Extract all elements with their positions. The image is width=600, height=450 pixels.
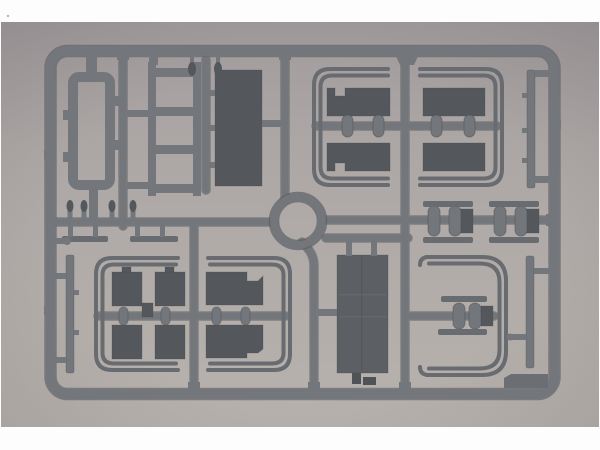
panel-bottom-middle-lower: [206, 325, 263, 358]
strip-stub: [52, 273, 66, 279]
strip-stub: [534, 176, 551, 183]
hub-capsule: [431, 115, 442, 137]
hub-capsule: [453, 303, 465, 329]
teardrop: [81, 200, 88, 212]
runner-edge-pad: [546, 214, 555, 226]
thin-bar: [489, 201, 539, 207]
hub-capsule: [241, 307, 250, 325]
teardrop: [214, 62, 222, 76]
ladder-rung: [148, 184, 201, 193]
runner-top-pad: [117, 50, 129, 60]
hub-block-bottom-left: [142, 303, 153, 317]
gate-stub: [93, 225, 98, 237]
thin-bar: [423, 201, 473, 207]
sprue-photo: [0, 0, 600, 450]
square-panel-tab: [165, 267, 174, 272]
strip-stub-tip: [507, 334, 514, 341]
strip-stub: [52, 357, 66, 363]
strip-stub: [535, 70, 551, 77]
gate-stub: [135, 225, 140, 237]
teardrop: [109, 200, 116, 212]
gate-stub: [127, 110, 148, 117]
thin-bar: [438, 329, 487, 335]
door-panel: [337, 255, 388, 385]
ladder-rung: [148, 107, 201, 116]
door-panel-line: [339, 294, 386, 296]
hub-block-c-rail: [481, 306, 493, 326]
panel-top-right-lower: [423, 143, 485, 171]
frame-bump: [115, 140, 120, 150]
hub-capsule: [161, 307, 170, 325]
hub-capsule: [342, 115, 353, 137]
teardrop: [188, 62, 196, 76]
gate-stub: [208, 125, 215, 131]
thin-strip-left: [66, 255, 74, 373]
hub-capsule: [469, 303, 481, 329]
gate-stub: [86, 55, 97, 75]
hub-capsule: [494, 206, 506, 236]
gate-stub: [371, 241, 377, 256]
ladder-rail: [193, 62, 201, 196]
strip-nub: [74, 330, 79, 335]
door-panel-line: [339, 316, 386, 318]
door-panel-foot: [363, 377, 376, 385]
frame-nub: [44, 306, 50, 315]
square-panel-2: [155, 272, 185, 306]
thin-bar: [423, 237, 473, 243]
square-panel-tab: [122, 267, 131, 272]
door-panel-seam: [361, 257, 363, 371]
runner-bottom-pad: [399, 382, 411, 392]
ladder-rung: [148, 145, 201, 154]
strip-nub: [74, 290, 79, 295]
teardrop: [130, 200, 137, 212]
tall-panel: [215, 70, 262, 186]
hub-capsule: [119, 307, 128, 325]
strip-stub: [534, 268, 550, 274]
gate-stub: [208, 90, 215, 96]
strip-stub: [512, 334, 526, 340]
gate-stub: [318, 309, 337, 316]
hub-capsule: [428, 206, 440, 236]
panel-top-right-upper: [423, 88, 485, 116]
gate-stub: [160, 225, 165, 237]
hub-capsule: [464, 115, 475, 137]
gate-stub: [346, 241, 352, 256]
frame-bump: [63, 110, 68, 120]
frame-nub: [555, 120, 561, 129]
teardrop: [67, 200, 74, 212]
dust-speck: [7, 15, 9, 17]
thin-strip-lower-right: [526, 256, 534, 368]
square-panel-4: [155, 325, 185, 359]
gate-stub: [208, 162, 215, 168]
runner-bottom-pad: [188, 382, 200, 392]
corner-tab: [504, 374, 548, 388]
strip-nub: [522, 158, 527, 163]
hub-capsule: [373, 115, 384, 137]
frame-bump: [63, 152, 68, 162]
gate-stub: [68, 225, 73, 237]
hub-capsule: [515, 206, 527, 236]
gate-stub: [127, 182, 148, 189]
thin-bar: [441, 296, 487, 302]
thin-strip-upper-right: [527, 70, 535, 188]
runner-top-pad: [279, 50, 291, 60]
gate-stub: [262, 120, 285, 127]
frame-bump: [115, 96, 120, 106]
gate-stub: [89, 188, 98, 224]
photo-page: Top-down photograph of a gray injection-…: [0, 0, 600, 450]
hub-capsule: [212, 307, 221, 325]
gate-knob: [63, 237, 71, 245]
strip-nub: [522, 128, 527, 133]
frame-nub: [44, 150, 50, 159]
door-panel-foot: [352, 373, 361, 384]
strip-nub: [522, 93, 527, 98]
runner-bottom-pad: [308, 382, 320, 392]
ladder-rail: [148, 62, 156, 196]
square-panel-1: [112, 272, 142, 306]
hub-capsule: [449, 206, 461, 236]
square-panel-3: [112, 325, 142, 359]
gate-stub: [149, 53, 158, 65]
thin-bar: [489, 237, 539, 243]
